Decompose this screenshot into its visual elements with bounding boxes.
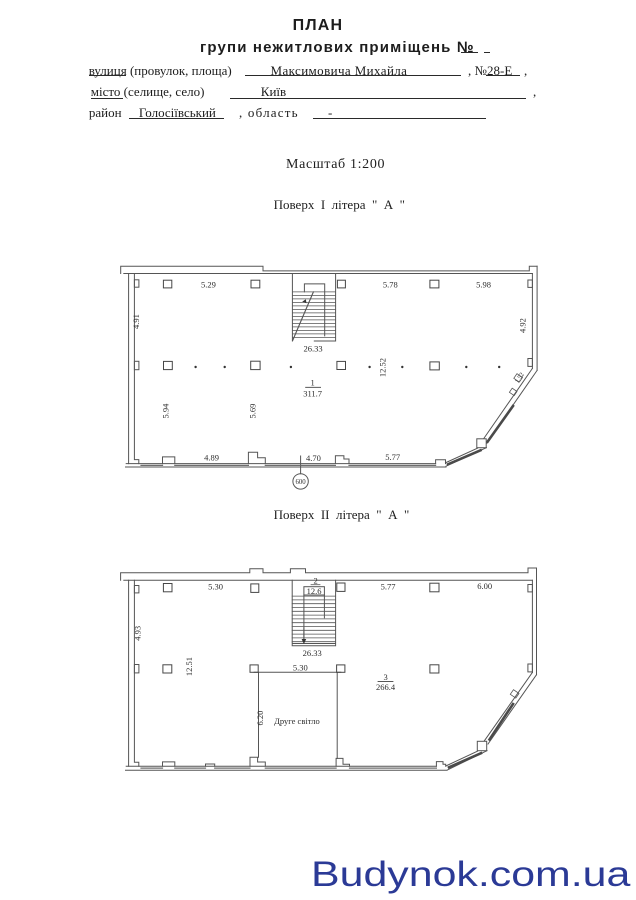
svg-text:1: 1 — [310, 378, 314, 388]
svg-text:4.89: 4.89 — [204, 453, 219, 463]
svg-text:5.30: 5.30 — [208, 582, 223, 592]
svg-text:6.20: 6.20 — [255, 711, 265, 726]
svg-text:600: 600 — [295, 479, 306, 486]
svg-text:12.6: 12.6 — [307, 586, 322, 596]
svg-text:12.51: 12.51 — [184, 657, 194, 676]
svg-text:311.7: 311.7 — [303, 389, 322, 399]
svg-text:5.77: 5.77 — [385, 452, 400, 462]
svg-text:5.30: 5.30 — [293, 663, 308, 673]
svg-text:3: 3 — [383, 672, 387, 682]
svg-text:5.98: 5.98 — [476, 279, 491, 289]
svg-text:6.00: 6.00 — [477, 581, 492, 591]
svg-text:4.91: 4.91 — [131, 314, 141, 329]
svg-text:266.4: 266.4 — [376, 682, 396, 692]
svg-text:4.70: 4.70 — [306, 453, 321, 463]
svg-text:12.52: 12.52 — [378, 358, 388, 377]
svg-text:4.93: 4.93 — [133, 626, 143, 641]
svg-text:5.78: 5.78 — [383, 279, 398, 289]
svg-text:1.52: 1.52 — [514, 371, 526, 384]
svg-text:5.69: 5.69 — [248, 404, 258, 419]
svg-text:4.92: 4.92 — [518, 318, 528, 333]
svg-text:Друге світло: Друге світло — [274, 716, 320, 726]
svg-text:5.29: 5.29 — [201, 279, 216, 289]
svg-text:5.94: 5.94 — [161, 403, 171, 419]
svg-text:26.33: 26.33 — [303, 648, 322, 658]
svg-text:26.33: 26.33 — [303, 343, 322, 353]
svg-text:2: 2 — [313, 576, 317, 586]
svg-text:5.77: 5.77 — [381, 582, 396, 592]
